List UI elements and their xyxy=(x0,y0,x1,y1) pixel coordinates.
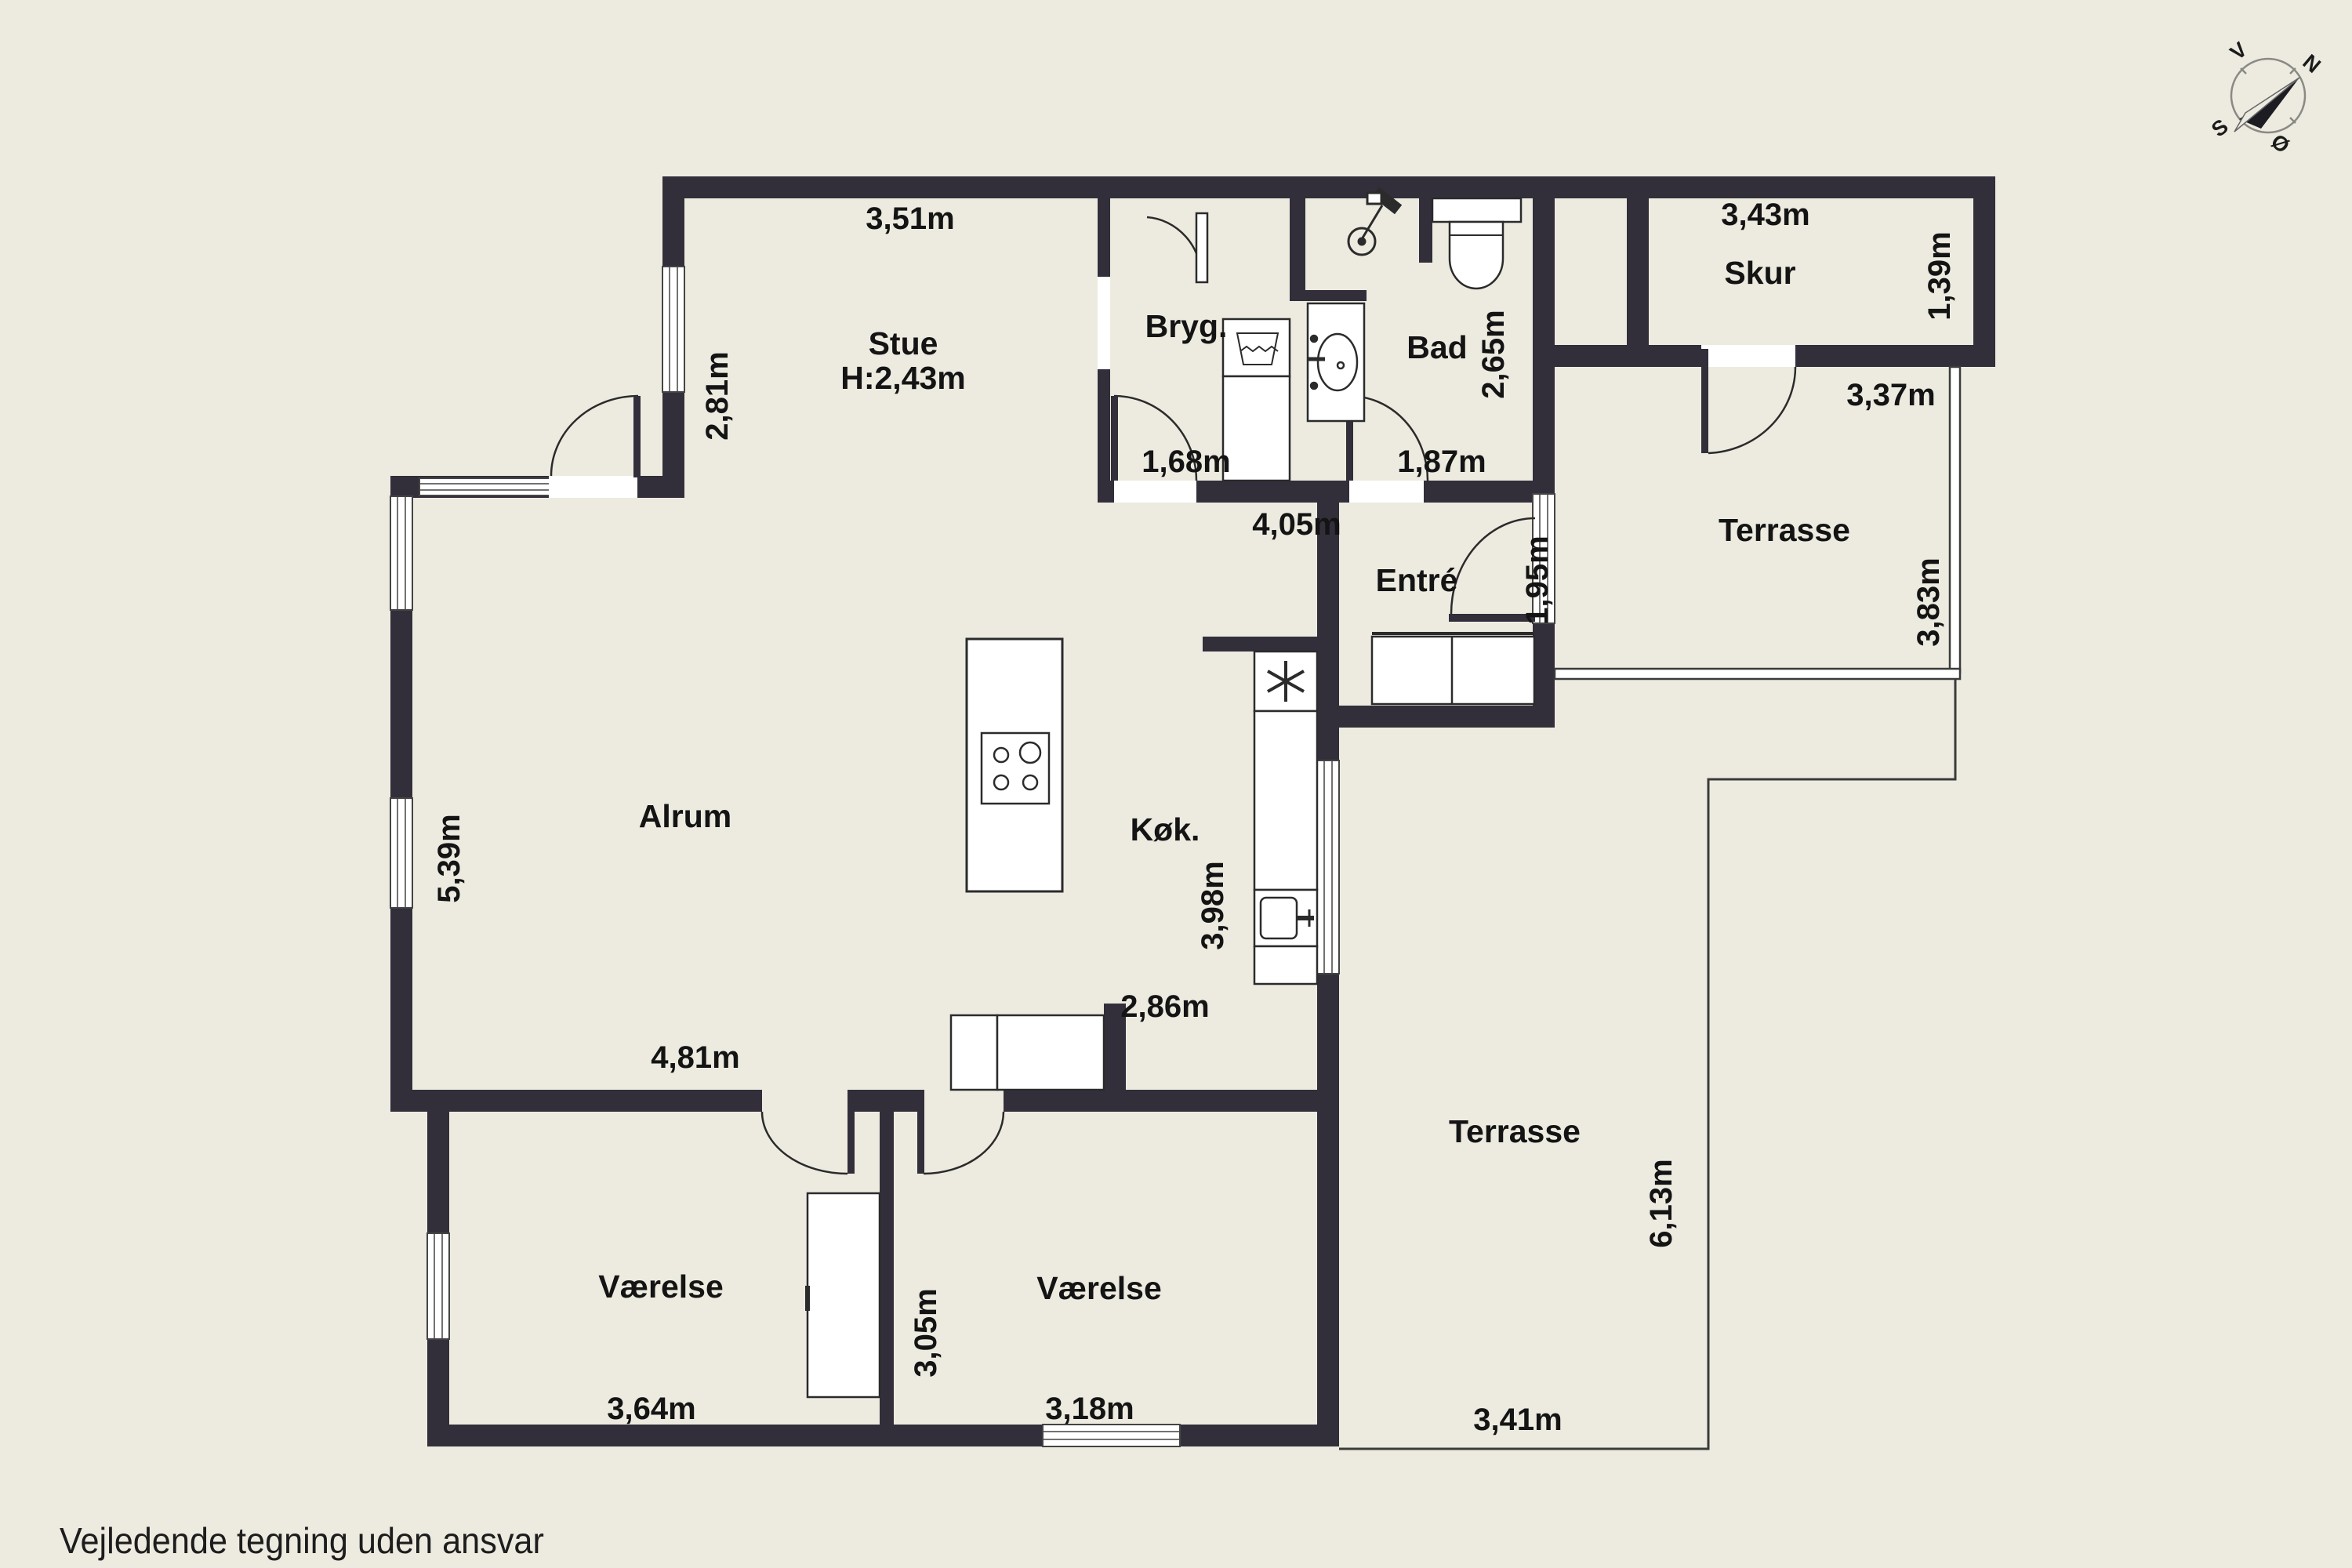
dim-terrasse-lower-width: 3,41m xyxy=(1473,1403,1562,1437)
dim-terrasse-upper-width: 3,37m xyxy=(1846,378,1935,412)
label-stue: Stue xyxy=(869,325,938,361)
dim-terrasse-upper-depth: 3,83m xyxy=(1911,557,1946,646)
dim-bad-depth: 2,65m xyxy=(1476,310,1511,398)
bedroom-wardrobe xyxy=(808,1193,880,1397)
compass: N Ø S V xyxy=(2207,38,2325,158)
wall-top xyxy=(662,176,1995,198)
disclaimer-note: Vejledende tegning uden ansvar xyxy=(60,1519,544,1562)
label-skur: Skur xyxy=(1724,255,1795,291)
door-arc-vaerelse-right xyxy=(924,1112,1004,1174)
compass-letter-north: N xyxy=(2299,49,2325,78)
window-alrum-left-lower xyxy=(390,798,412,908)
wall-skur-right xyxy=(1973,176,1995,367)
wall-bryg-bad-stub xyxy=(1290,290,1367,301)
dim-alrum-bottom: 4,81m xyxy=(651,1040,739,1075)
label-alrum: Alrum xyxy=(639,798,731,834)
toilet-tank xyxy=(1432,198,1521,222)
door-arc-stue-west xyxy=(551,396,638,476)
wall-bryg-left-upper xyxy=(1098,198,1110,277)
label-terrasse-upper: Terrasse xyxy=(1719,512,1850,548)
kitchen-counter-column xyxy=(1254,652,1317,984)
washer-column xyxy=(1223,319,1290,481)
dim-vaerelse-depth: 3,05m xyxy=(909,1288,943,1377)
dim-alrum-top: 4,05m xyxy=(1252,507,1341,542)
floor-plan: Stue H:2,43m Bryg. Bad Skur Entré Terras… xyxy=(0,0,2352,1568)
dim-alrum-left: 5,39m xyxy=(432,814,466,902)
window-vaerelse-left xyxy=(427,1233,449,1339)
wall-kok-bottom xyxy=(1004,1090,1339,1112)
compass-letter-east: Ø xyxy=(2267,129,2294,158)
window-stue-left xyxy=(662,267,684,392)
dim-skur-width: 3,43m xyxy=(1721,198,1809,232)
wall-skur-bottom-a xyxy=(1533,345,1701,367)
dim-entre-door: 1,95m xyxy=(1520,535,1555,624)
label-bryggers: Bryg. xyxy=(1145,308,1228,344)
compass-letter-south: S xyxy=(2207,114,2233,142)
wall-stue-left-upper xyxy=(662,198,684,270)
door-opening-bryg-alrum xyxy=(1114,481,1196,503)
label-vaerelse-left: Værelse xyxy=(598,1269,724,1305)
door-opening-skur xyxy=(1701,345,1795,367)
kitchen-bottom-counters xyxy=(951,1015,1104,1090)
wall-kok-right-lower xyxy=(1317,974,1339,1099)
door-opening-stue-west xyxy=(549,476,637,498)
wall-left-outer-low xyxy=(390,908,412,1112)
door-leaf-skur xyxy=(1701,349,1708,453)
wall-rooms-bottom xyxy=(427,1425,1339,1446)
window-step-west xyxy=(419,478,551,495)
door-opening-bryg xyxy=(1098,277,1110,369)
cooktop-burner xyxy=(994,775,1008,789)
door-leaf-stue-west xyxy=(633,396,641,477)
wall-shower-stub xyxy=(1419,198,1432,263)
cooktop-burner xyxy=(1023,775,1037,789)
toilet xyxy=(1432,198,1521,289)
door-leaf-bryg-alrum xyxy=(1111,396,1118,481)
tall-cabinet xyxy=(1223,376,1290,481)
entre-closet xyxy=(1372,633,1534,704)
window-kok-right xyxy=(1317,760,1339,974)
door-leaf-bryg xyxy=(1196,213,1207,282)
wall-bad-bottom-a xyxy=(1098,481,1114,503)
wall-vaerelse-partition xyxy=(880,1090,894,1425)
wall-left-outer-mid xyxy=(390,610,412,798)
door-leaf-vaerelse-left xyxy=(848,1090,855,1174)
wall-bryg-bad-divider xyxy=(1290,198,1305,296)
terrace-lower-outline xyxy=(1339,679,1955,1449)
cooktop-burner xyxy=(1020,742,1040,763)
dim-terrasse-lower-depth: 6,13m xyxy=(1644,1159,1679,1247)
label-bad: Bad xyxy=(1406,329,1467,365)
wall-entre-bottom xyxy=(1317,706,1555,728)
terrace-upper-right-edge xyxy=(1950,367,1960,673)
terrace-upper-bottom-edge xyxy=(1555,669,1960,679)
wall-bad-bottom-b xyxy=(1196,481,1349,503)
dim-bad-door: 1,87m xyxy=(1397,445,1486,479)
label-entre: Entré xyxy=(1376,562,1458,598)
wall-skur-left xyxy=(1627,198,1649,345)
door-arc-vaerelse-left xyxy=(762,1112,848,1174)
cooktop-burner xyxy=(994,748,1008,762)
compass-letter-west: V xyxy=(2226,38,2252,65)
door-leaf-vaerelse-right xyxy=(917,1090,924,1174)
compass-needle-light xyxy=(2234,78,2299,132)
kitchen-island xyxy=(967,639,1062,891)
door-arc-skur xyxy=(1708,367,1795,453)
cooktop xyxy=(982,733,1049,804)
label-kokken: Køk. xyxy=(1131,811,1200,848)
dim-bryggers-width: 1,68m xyxy=(1142,445,1230,479)
terrace-boundaries xyxy=(1339,367,1960,1449)
dim-kokken-depth: 3,98m xyxy=(1196,861,1230,949)
dim-vaerelse-right-width: 3,18m xyxy=(1045,1392,1134,1426)
wall-stue-left-lower xyxy=(662,388,684,481)
toilet-bowl xyxy=(1450,222,1503,289)
bath-vanity xyxy=(1308,303,1364,421)
dim-kokken-width: 2,86m xyxy=(1120,989,1209,1024)
wall-kok-right-upper xyxy=(1317,728,1339,760)
label-vaerelse-right: Værelse xyxy=(1036,1270,1162,1306)
window-alrum-left-upper xyxy=(390,496,412,610)
dim-vaerelse-left-width: 3,64m xyxy=(607,1392,695,1426)
wall-vaerelse-right-outer xyxy=(1317,1090,1339,1446)
label-terrasse-lower: Terrasse xyxy=(1449,1113,1581,1149)
shower-icon xyxy=(1348,189,1400,255)
door-opening-bad-entre xyxy=(1349,481,1424,503)
wall-kok-top-stub xyxy=(1203,637,1317,652)
wall-skur-bottom-b xyxy=(1795,345,1995,367)
dim-skur-depth: 1,39m xyxy=(1922,231,1957,320)
window-vaerelse-right-bottom xyxy=(1043,1425,1180,1446)
dim-stue-left: 2,81m xyxy=(700,351,735,440)
door-arc-bryg xyxy=(1147,217,1202,280)
counter-cell xyxy=(1254,711,1317,890)
label-stue-height: H:2,43m xyxy=(840,360,966,396)
counter-cell xyxy=(1254,946,1317,984)
dim-stue-width: 3,51m xyxy=(866,201,954,236)
